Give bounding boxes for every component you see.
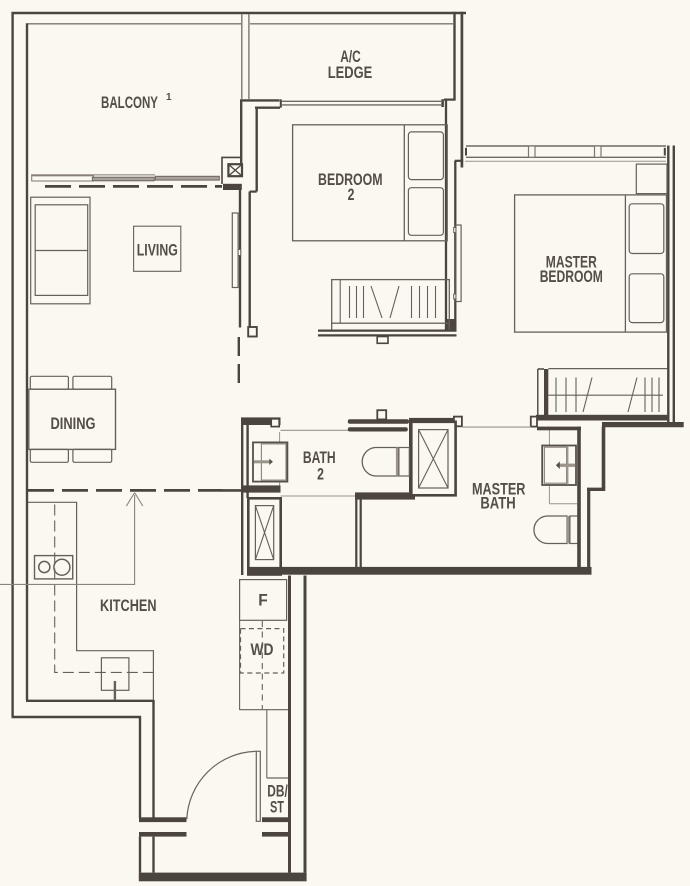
svg-text:LIVING: LIVING (137, 241, 178, 259)
svg-text:1: 1 (166, 92, 172, 103)
svg-text:KITCHEN: KITCHEN (100, 597, 157, 615)
svg-text:ST: ST (270, 799, 284, 817)
svg-text:BALCONY: BALCONY (101, 94, 158, 112)
svg-text:LEDGE: LEDGE (328, 64, 373, 82)
svg-text:F: F (258, 591, 268, 609)
svg-text:2: 2 (348, 186, 355, 204)
svg-text:DINING: DINING (51, 415, 96, 433)
svg-text:BEDROOM: BEDROOM (540, 268, 603, 286)
svg-text:2: 2 (317, 465, 324, 483)
svg-text:BATH: BATH (480, 495, 515, 513)
